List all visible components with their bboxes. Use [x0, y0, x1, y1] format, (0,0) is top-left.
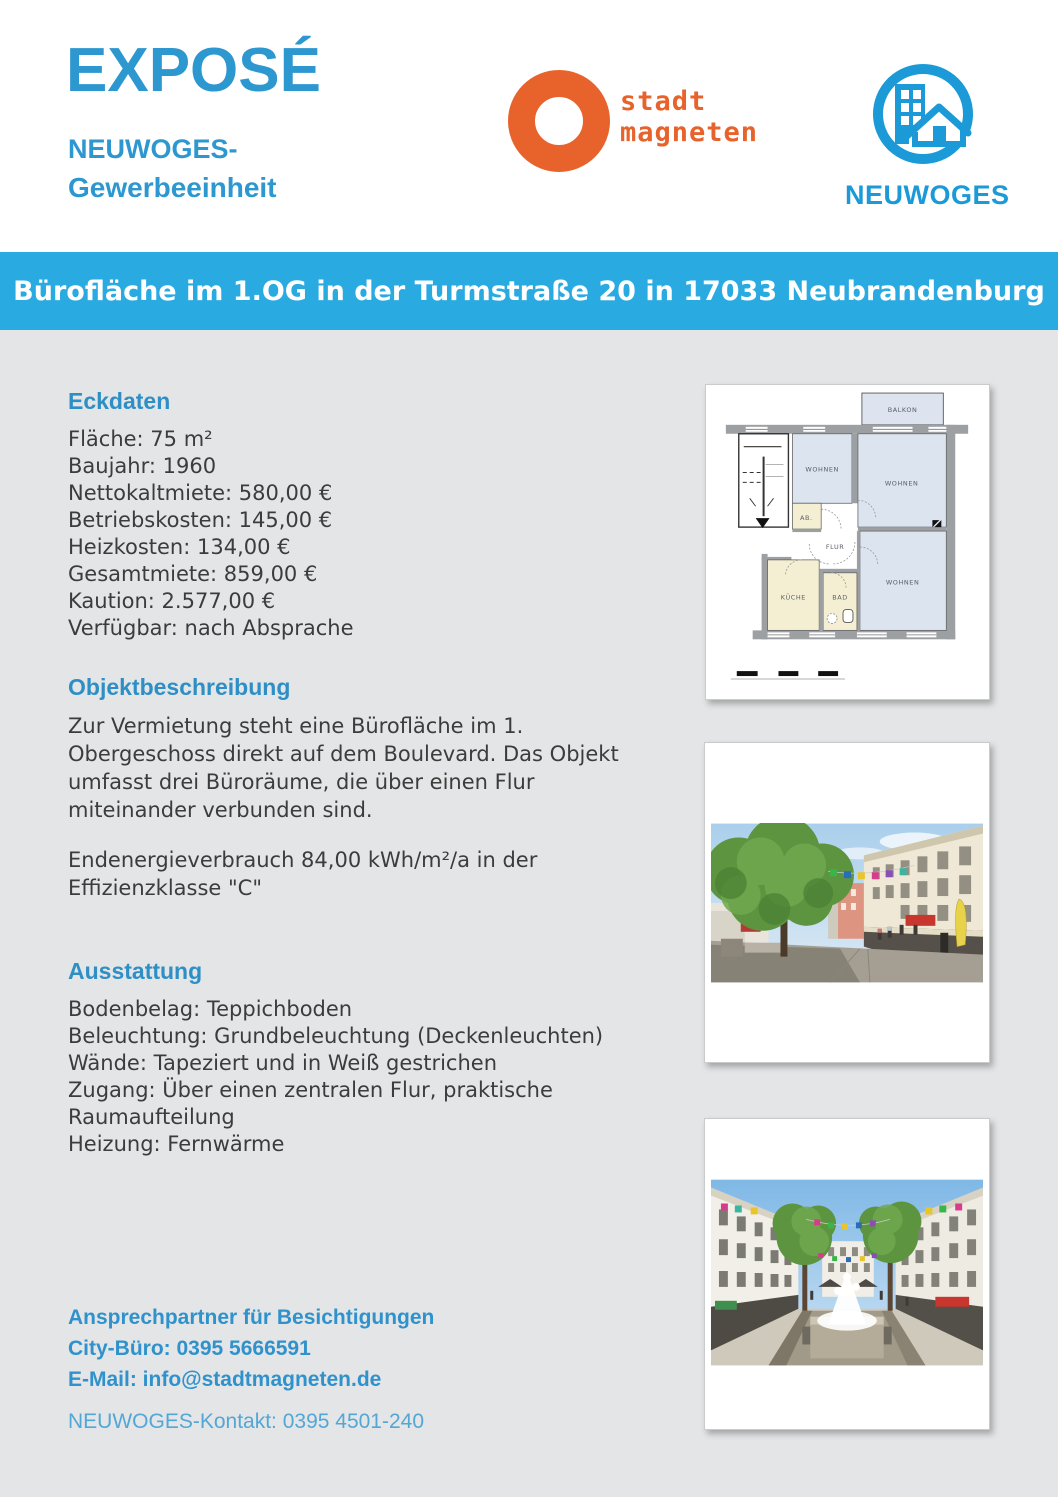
- room-label-wohnen-3: WOHNEN: [886, 579, 920, 587]
- room-label-wohnen-2: WOHNEN: [885, 479, 919, 487]
- neuwoges-logo-text: NEUWOGES: [845, 180, 1005, 211]
- street-photo-fountain: [711, 1179, 983, 1366]
- floorplan-image: BALKON WOHNEN WOHNEN AB. FLUR KÜCHE BAD …: [706, 385, 989, 699]
- fact-betriebskosten: Betriebskosten: 145,00 €: [68, 507, 628, 534]
- neuwoges-logo: NEUWOGES: [845, 62, 1005, 222]
- section-heading-ausstattung: Ausstattung: [68, 958, 202, 985]
- fact-flaeche: Fläche: 75 m²: [68, 426, 628, 453]
- photo-card-fountain: [704, 1118, 990, 1430]
- expose-subtitle-line2: Gewerbeeinheit: [68, 172, 277, 204]
- feature-waende: Wände: Tapeziert und in Weiß gestrichen: [68, 1050, 628, 1077]
- object-title: Bürofläche im 1.OG in der Turmstraße 20 …: [13, 276, 1045, 307]
- fact-baujahr: Baujahr: 1960: [68, 453, 628, 480]
- section-heading-eckdaten: Eckdaten: [68, 388, 170, 415]
- room-label-bad: BAD: [832, 594, 848, 602]
- contact-phone: City-Büro: 0395 5666591: [68, 1333, 434, 1364]
- expose-title: EXPOSÉ: [66, 40, 321, 102]
- stadtmagneten-ring-icon: [508, 70, 610, 172]
- room-label-ab: AB.: [800, 514, 813, 522]
- fact-verfuegbar: Verfügbar: nach Absprache: [68, 615, 628, 642]
- room-label-flur: FLUR: [826, 543, 845, 551]
- object-description-paragraph: Zur Vermietung steht eine Bürofläche im …: [68, 712, 628, 824]
- feature-beleuchtung: Beleuchtung: Grundbeleuchtung (Deckenleu…: [68, 1023, 628, 1050]
- ausstattung-list: Bodenbelag: Teppichboden Beleuchtung: Gr…: [68, 996, 628, 1158]
- street-photo-boulevard: [711, 823, 983, 983]
- stadtmagneten-logo: stadt magneten: [508, 68, 838, 178]
- eckdaten-list: Fläche: 75 m² Baujahr: 1960 Nettokaltmie…: [68, 426, 628, 642]
- neuwoges-contact-line: NEUWOGES-Kontakt: 0395 4501-240: [68, 1410, 424, 1434]
- feature-bodenbelag: Bodenbelag: Teppichboden: [68, 996, 628, 1023]
- expose-subtitle-line1: NEUWOGES-: [68, 134, 238, 165]
- room-label-balkon: BALKON: [888, 406, 918, 414]
- title-banner: Bürofläche im 1.OG in der Turmstraße 20 …: [0, 252, 1058, 330]
- fact-gesamtmiete: Gesamtmiete: 859,00 €: [68, 561, 628, 588]
- stadtmagneten-wordmark: stadt magneten: [620, 86, 758, 148]
- feature-zugang: Zugang: Über einen zentralen Flur, prakt…: [68, 1077, 628, 1131]
- stadtmagneten-word-stadt: stadt: [620, 86, 758, 117]
- fact-kaution: Kaution: 2.577,00 €: [68, 588, 628, 615]
- fact-heizkosten: Heizkosten: 134,00 €: [68, 534, 628, 561]
- feature-heizung: Heizung: Fernwärme: [68, 1131, 628, 1158]
- room-label-kueche: KÜCHE: [781, 593, 806, 602]
- contact-block: Ansprechpartner für Besichtigungen City-…: [68, 1302, 434, 1395]
- photo-card-boulevard: [704, 742, 990, 1063]
- fact-nettokaltmiete: Nettokaltmiete: 580,00 €: [68, 480, 628, 507]
- energy-consumption-paragraph: Endenergieverbrauch 84,00 kWh/m²/a in de…: [68, 846, 628, 902]
- stadtmagneten-word-magneten: magneten: [620, 117, 758, 148]
- page-header: EXPOSÉ NEUWOGES- Gewerbeeinheit stadt ma…: [0, 0, 1058, 252]
- expose-page: EXPOSÉ NEUWOGES- Gewerbeeinheit stadt ma…: [0, 0, 1058, 1497]
- neuwoges-building-house-icon: [869, 62, 977, 170]
- contact-heading: Ansprechpartner für Besichtigungen: [68, 1302, 434, 1333]
- section-heading-objektbeschreibung: Objektbeschreibung: [68, 674, 290, 701]
- contact-email: E-Mail: info@stadtmagneten.de: [68, 1364, 434, 1395]
- floorplan-card: BALKON WOHNEN WOHNEN AB. FLUR KÜCHE BAD …: [705, 384, 990, 700]
- room-label-wohnen-1: WOHNEN: [805, 465, 839, 473]
